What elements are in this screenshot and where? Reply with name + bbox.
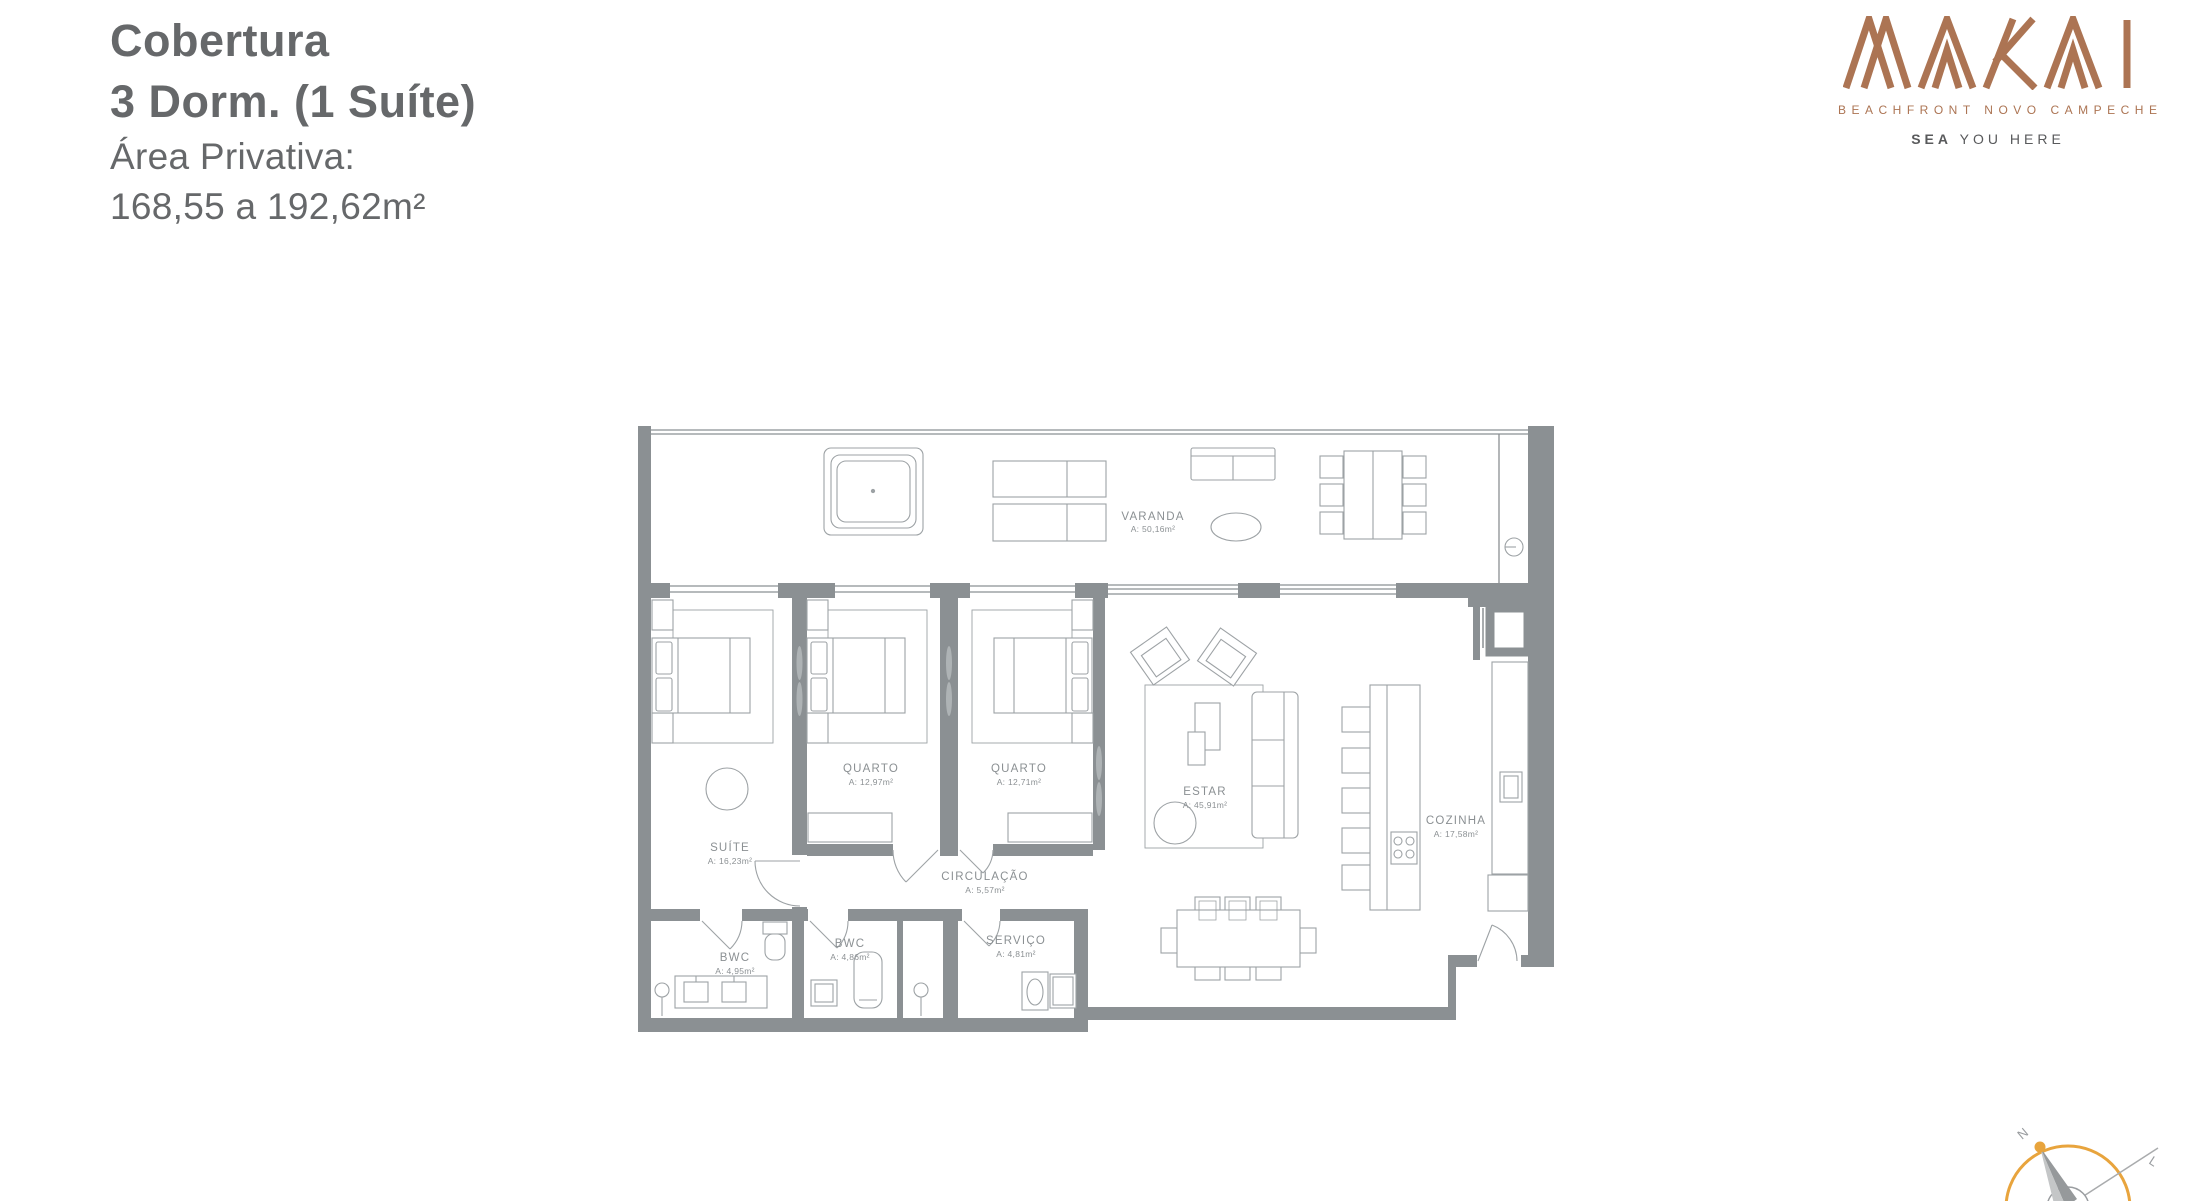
svg-text:A: 12,97m²: A: 12,97m² [849,777,894,787]
logo-tagline-rest: YOU HERE [1952,131,2065,147]
svg-text:A: 16,23m²: A: 16,23m² [708,856,753,866]
compass-east-label: L [2146,1153,2161,1170]
svg-text:BWC: BWC [720,952,750,964]
svg-text:ESTAR: ESTAR [1183,786,1227,798]
svg-text:QUARTO: QUARTO [843,763,899,775]
furniture [652,448,1528,1016]
svg-text:A: 45,91m²: A: 45,91m² [1183,800,1228,810]
kitchen-island-icon [1342,685,1420,910]
room-label-bwc-suite: BWC A: 4,95m² [715,952,755,976]
living-set-icon [1131,627,1298,848]
svg-text:BWC: BWC [835,938,865,950]
svg-text:A: 5,57m²: A: 5,57m² [965,885,1005,895]
svg-text:A: 4,86m²: A: 4,86m² [830,952,870,962]
quarto1-bed-icon [807,600,927,743]
room-label-quarto2: QUARTO A: 12,71m² [991,763,1047,787]
svg-text:CIRCULAÇÃO: CIRCULAÇÃO [941,870,1028,883]
page-title-line1: Cobertura [110,10,476,71]
logo-tagline-bold: SEA [1911,131,1952,147]
svg-text:A: 50,16m²: A: 50,16m² [1131,524,1176,534]
quarto2-wardrobe-icon [1008,813,1092,842]
varanda-dining-icon [1320,451,1426,539]
svg-text:A: 12,71m²: A: 12,71m² [997,777,1042,787]
svg-text:A: 17,58m²: A: 17,58m² [1434,829,1479,839]
oval-table-icon [1211,513,1261,541]
hose-bib-icon [1505,538,1523,556]
floor-plan: VARANDA A: 50,16m² SUÍTE A: 16,23m² QUAR… [630,420,1570,1032]
room-label-varanda: VARANDA A: 50,16m² [1121,511,1184,534]
logo-subtitle: BEACHFRONT NOVO CAMPECHE [1838,103,2138,117]
room-label-servico: SERVIÇO A: 4,81m² [986,935,1046,959]
svg-text:QUARTO: QUARTO [991,763,1047,775]
private-area-value: 168,55 a 192,62m² [110,182,476,232]
hot-tub-icon [824,448,923,535]
private-area-label: Área Privativa: [110,132,476,182]
makai-logo: MAKAI BEACHFRONT NOVO CAMPECHE SEA YOU H… [1838,16,2138,147]
kitchen-counter-icon [1488,662,1528,911]
makai-wordmark-icon [1843,16,2133,90]
svg-text:SUÍTE: SUÍTE [710,841,750,854]
room-label-circulacao: CIRCULAÇÃO A: 5,57m² [941,870,1028,895]
room-label-suite: SUÍTE A: 16,23m² [708,841,753,866]
compass-north-label: N [2014,1124,2032,1142]
varanda-sofa-icon [1191,448,1275,480]
page-title-line2: 3 Dorm. (1 Suíte) [110,71,476,132]
compass-rose: N L [1960,1090,2209,1201]
page: Cobertura 3 Dorm. (1 Suíte) Área Privati… [0,0,2209,1201]
logo-tagline: SEA YOU HERE [1838,131,2138,147]
quarto1-wardrobe-icon [808,813,892,842]
servico-fixtures-icon [1022,972,1076,1010]
svg-text:A: 4,95m²: A: 4,95m² [715,966,755,976]
room-label-quarto1: QUARTO A: 12,97m² [843,763,899,787]
title-block: Cobertura 3 Dorm. (1 Suíte) Área Privati… [110,10,476,232]
room-label-bwc-social: BWC A: 4,86m² [830,938,870,962]
svg-text:A: 4,81m²: A: 4,81m² [996,949,1036,959]
quarto2-bed-icon [972,600,1093,743]
svg-text:COZINHA: COZINHA [1426,815,1486,827]
lounge-tables-icon [993,461,1106,541]
svg-text:VARANDA: VARANDA [1121,511,1184,523]
suite-table-icon [706,768,748,810]
svg-text:SERVIÇO: SERVIÇO [986,935,1046,947]
suite-bed-icon [652,600,773,743]
dining-table-icon [1161,897,1316,980]
compass-north-dot [2035,1142,2046,1153]
room-label-cozinha: COZINHA A: 17,58m² [1426,815,1486,839]
